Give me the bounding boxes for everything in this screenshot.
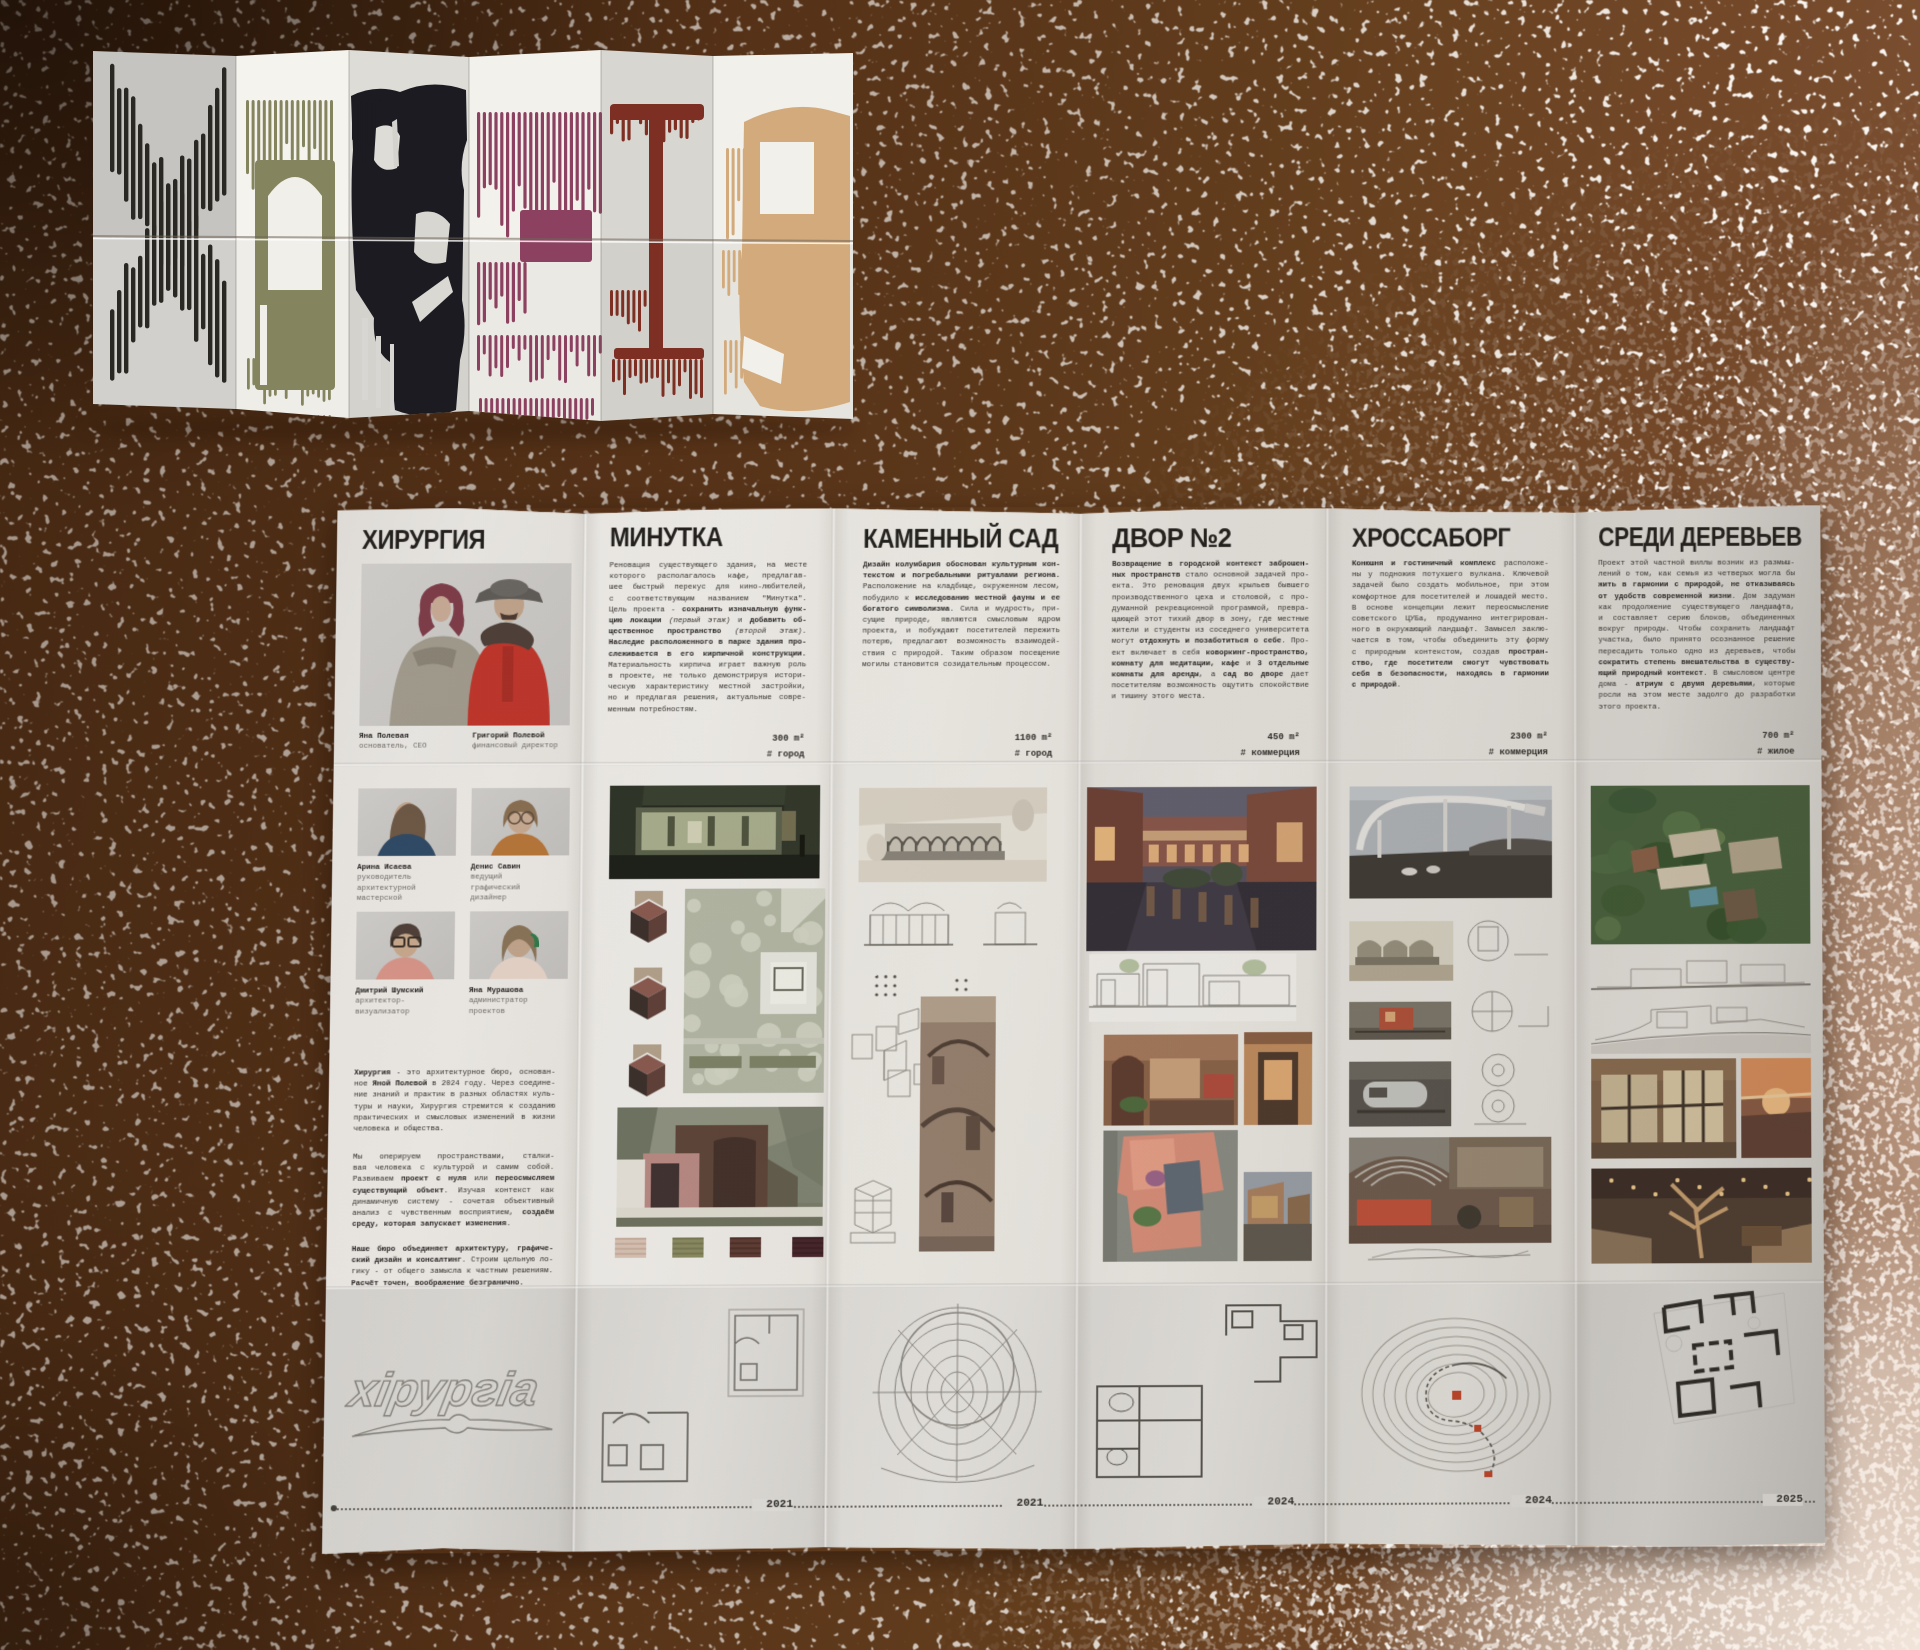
- svg-text:хірургіа: хірургіа: [344, 1362, 543, 1416]
